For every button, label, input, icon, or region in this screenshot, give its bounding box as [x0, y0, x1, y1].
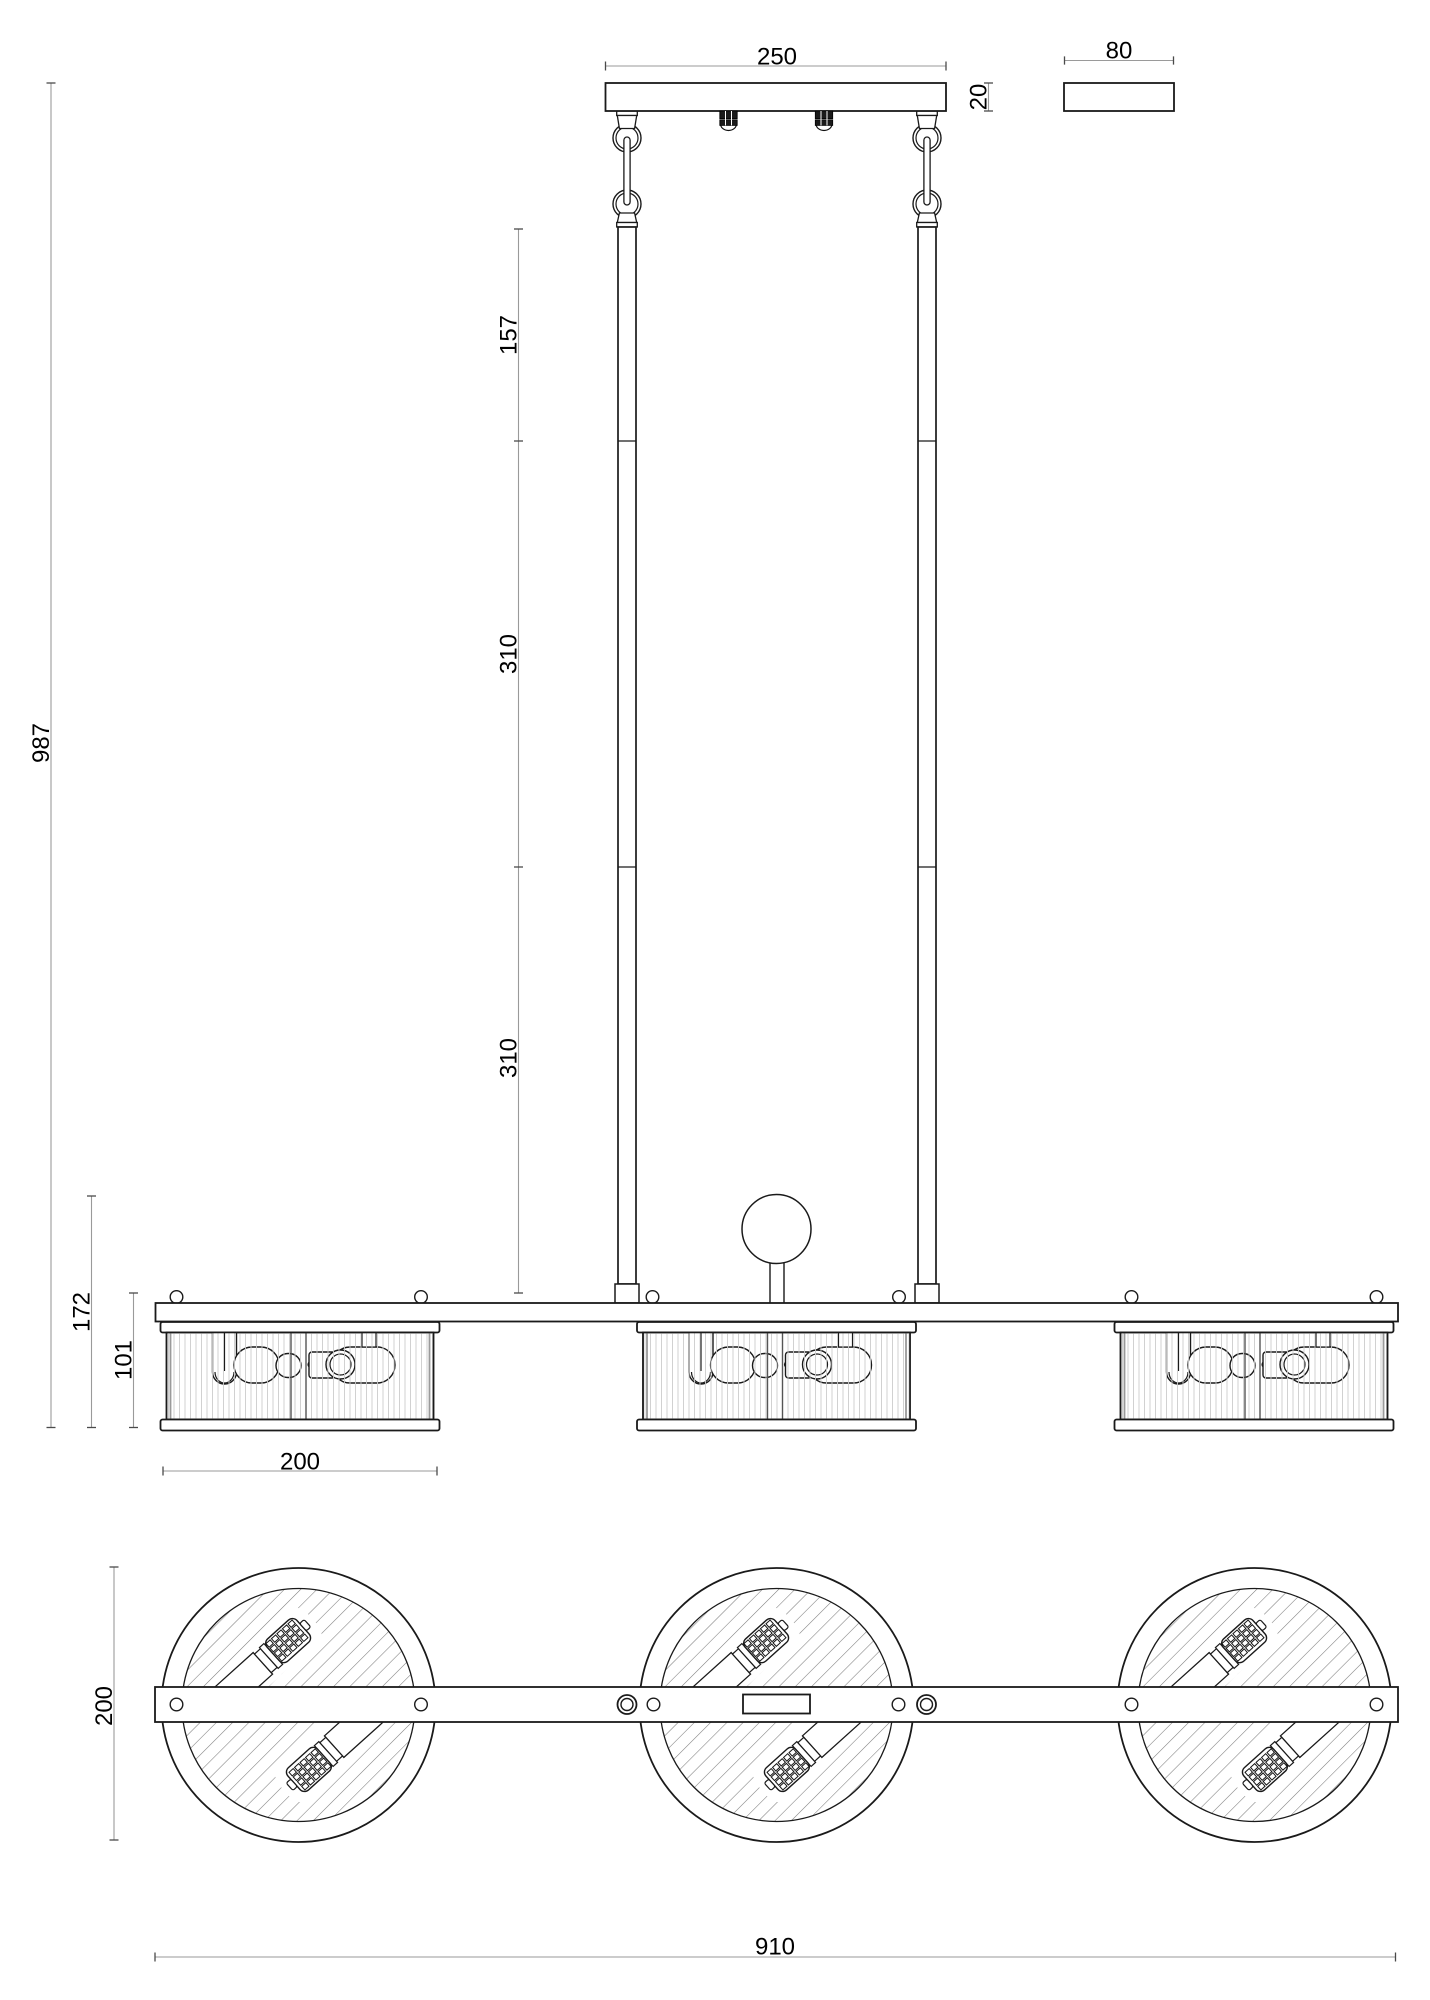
svg-text:101: 101	[111, 1340, 138, 1380]
svg-text:200: 200	[91, 1686, 118, 1726]
svg-text:80: 80	[1106, 38, 1133, 65]
svg-text:250: 250	[757, 44, 797, 71]
svg-text:157: 157	[496, 315, 523, 355]
svg-text:200: 200	[280, 1449, 320, 1476]
svg-text:20: 20	[966, 84, 993, 111]
svg-text:910: 910	[755, 1934, 795, 1961]
svg-text:172: 172	[69, 1292, 96, 1332]
svg-text:987: 987	[28, 723, 55, 763]
svg-text:310: 310	[496, 634, 523, 674]
svg-text:310: 310	[496, 1038, 523, 1078]
